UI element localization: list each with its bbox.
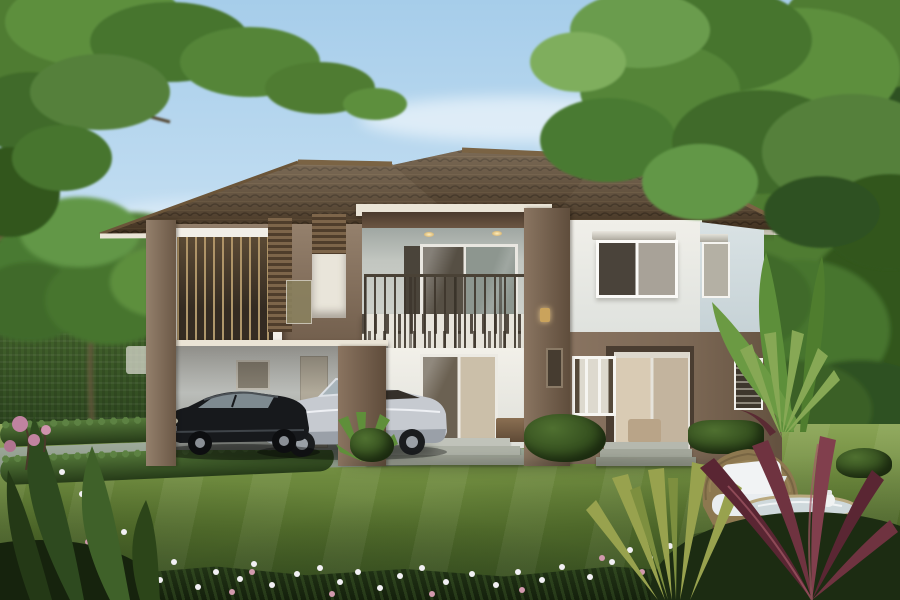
glass-balustrade-panel [286,280,312,324]
window-awning [700,234,728,242]
entry-step [604,442,688,449]
balcony-railing [364,274,546,351]
car-ground-shadow [168,440,436,460]
upper-side-window [702,242,730,298]
center-sliding-glass-door [420,354,498,448]
downlight [424,232,434,237]
wall-sconce-light [540,308,550,322]
roller-shade [312,254,346,318]
shrub [524,414,606,462]
lower-right-window [734,358,763,410]
architectural-rendering [0,0,900,600]
entry-step [600,449,692,457]
cloud [540,128,750,162]
downlight [492,231,502,236]
trimmed-hedge-box [688,420,764,454]
pink-flowers [0,0,4,4]
window-awning [592,231,676,240]
structural-post [146,220,176,466]
trimmed-bush-dome [836,448,892,478]
wood-louver-panel [312,214,346,254]
lower-left-window [572,356,616,416]
slot-window [546,348,563,388]
entry-sliding-glass-door [614,352,690,452]
house-shadow [340,460,770,472]
shrub [350,428,394,462]
upper-front-window [596,240,678,298]
balcony-ceiling [362,212,548,228]
